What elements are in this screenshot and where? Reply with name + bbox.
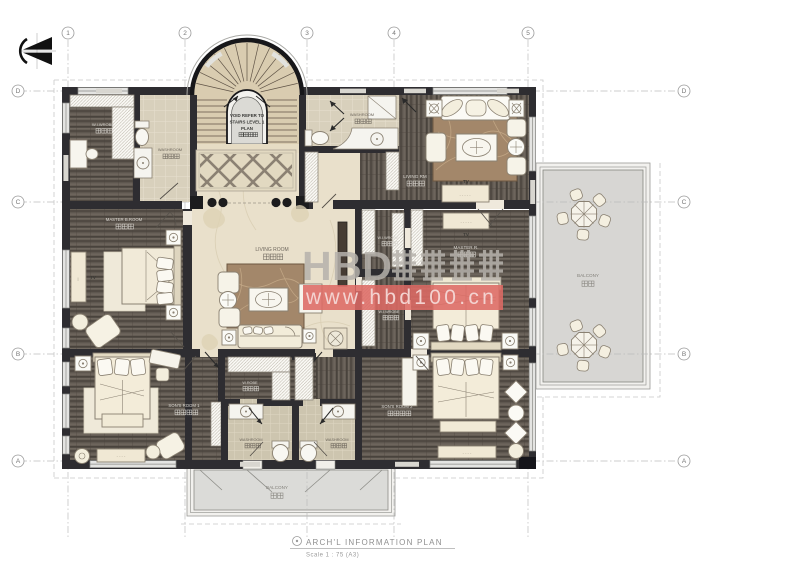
svg-text:MASTER R.: MASTER R. (453, 245, 478, 250)
svg-text:C: C (682, 199, 687, 206)
svg-text:2: 2 (183, 30, 187, 37)
svg-text:1: 1 (66, 30, 70, 37)
svg-text:WASHROOM: WASHROOM (239, 438, 262, 442)
svg-text:W.ROBE: W.ROBE (242, 381, 258, 385)
svg-text:W.I.WROBE: W.I.WROBE (378, 236, 399, 240)
svg-text:4: 4 (392, 30, 396, 37)
svg-text:MASTER B.ROOM: MASTER B.ROOM (106, 217, 143, 222)
svg-text:- - - - -: - - - - - (460, 219, 472, 224)
svg-text:BALCONY: BALCONY (577, 273, 599, 278)
svg-text:TV: TV (90, 275, 96, 280)
svg-text:5: 5 (526, 30, 530, 37)
svg-text:W.I.WROBE: W.I.WROBE (379, 310, 400, 314)
svg-text:PLAN: PLAN (241, 126, 253, 131)
svg-text:LIVING ROOM: LIVING ROOM (255, 247, 288, 253)
svg-text:SON'S ROOM 1: SON'S ROOM 1 (168, 403, 200, 408)
svg-text:A: A (682, 458, 687, 465)
svg-text:C: C (16, 199, 21, 206)
svg-text:STAIRS LEVEL 1: STAIRS LEVEL 1 (230, 120, 265, 125)
svg-text:LIVING RM: LIVING RM (403, 174, 427, 179)
svg-text:- - - - -: - - - - - (459, 192, 471, 197)
svg-text:ARCH'L INFORMATION PLAN: ARCH'L INFORMATION PLAN (306, 538, 443, 547)
svg-text:TV: TV (463, 232, 469, 237)
svg-text:WASHROOM: WASHROOM (325, 438, 348, 442)
svg-text:TV: TV (463, 179, 469, 184)
svg-text:B: B (682, 351, 686, 358)
svg-text:www.hbd100.cn: www.hbd100.cn (305, 286, 497, 309)
svg-text:|: | (77, 276, 78, 281)
svg-text:HBD: HBD (302, 243, 392, 289)
svg-text:SON'S ROOM 2: SON'S ROOM 2 (381, 404, 413, 409)
svg-text:Scale 1 : 75 (A3): Scale 1 : 75 (A3) (306, 553, 359, 559)
svg-text:WASHROOM: WASHROOM (158, 147, 182, 152)
svg-text:D: D (682, 88, 687, 95)
svg-text:B: B (16, 351, 20, 358)
svg-text:VOID REFER TO: VOID REFER TO (230, 113, 265, 118)
svg-text:- - - -: - - - - (117, 454, 126, 459)
svg-text:W.I.WROBE: W.I.WROBE (92, 122, 114, 127)
svg-text:3: 3 (305, 30, 309, 37)
svg-text:WASHROOM: WASHROOM (350, 112, 374, 117)
svg-text:- - - -: - - - - (463, 450, 472, 455)
svg-text:D: D (16, 88, 21, 95)
svg-text:A: A (16, 458, 21, 465)
